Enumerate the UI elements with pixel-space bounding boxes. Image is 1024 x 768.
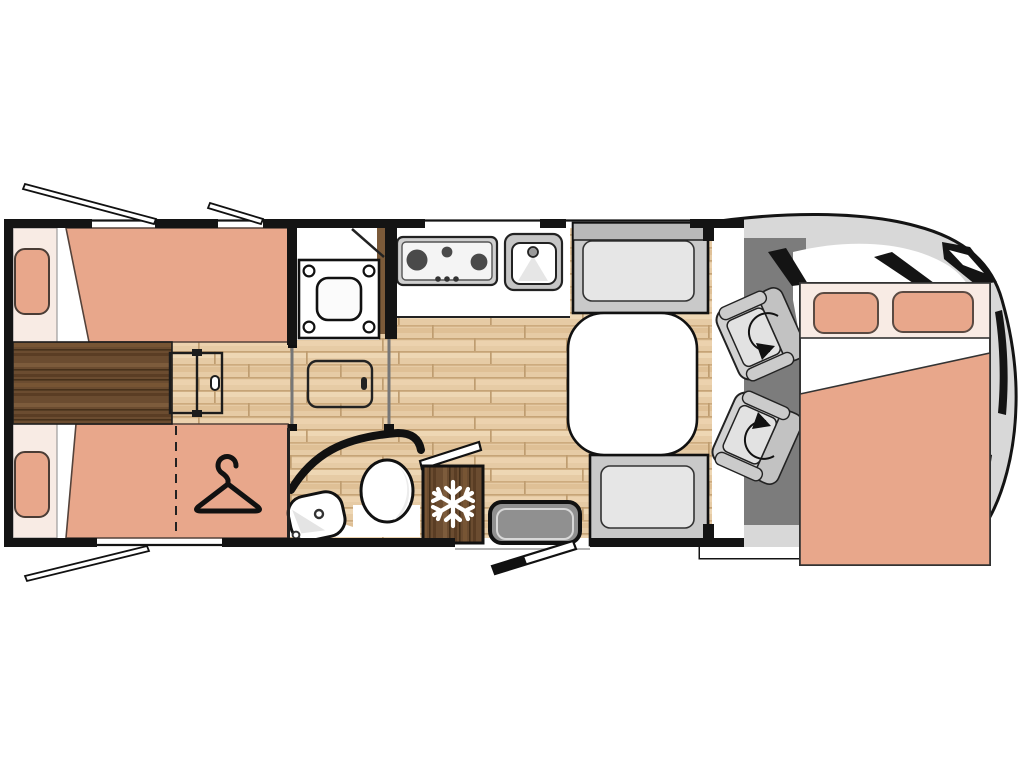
burner-large-right — [471, 254, 488, 271]
burner-large-left — [407, 250, 428, 271]
bench-seat-front — [590, 455, 708, 545]
hatch-handle — [361, 377, 367, 390]
pillow-upper — [15, 249, 49, 314]
floorplan-svg — [0, 0, 1024, 768]
single-bed-upper — [66, 228, 288, 342]
entry-step — [490, 502, 580, 543]
dinette-table — [568, 313, 697, 455]
motorhome-floorplan — [0, 0, 1024, 768]
kitchen-sink — [505, 234, 562, 290]
refrigerator — [423, 466, 483, 543]
entrance — [490, 502, 580, 543]
pillow-left — [814, 293, 878, 333]
shower-room — [297, 228, 385, 340]
entry-door-dark-edge — [492, 556, 527, 574]
hob — [397, 237, 497, 285]
window-flap-rear-top — [23, 184, 156, 224]
hob-knob-3 — [453, 276, 459, 282]
pillow-right — [893, 292, 973, 332]
faucet — [528, 247, 538, 257]
hob-knob-2 — [444, 276, 450, 282]
hob-knob-1 — [435, 276, 441, 282]
bench-cushion-front — [601, 466, 694, 528]
dinette — [568, 223, 708, 545]
kitchen — [397, 228, 570, 317]
bedside-chest — [13, 342, 172, 424]
bench-seat-rear — [573, 223, 708, 313]
bench-cushion-rear — [583, 241, 694, 301]
shower-tray — [299, 260, 379, 338]
basin-drain — [315, 510, 323, 518]
floor-drain — [293, 532, 300, 539]
burner-small — [442, 247, 453, 258]
toilet — [361, 460, 413, 522]
pillow-lower — [15, 452, 49, 517]
step-handle — [211, 376, 219, 390]
window-flap-bottom — [25, 546, 149, 581]
overcab-double-bed — [800, 283, 990, 565]
